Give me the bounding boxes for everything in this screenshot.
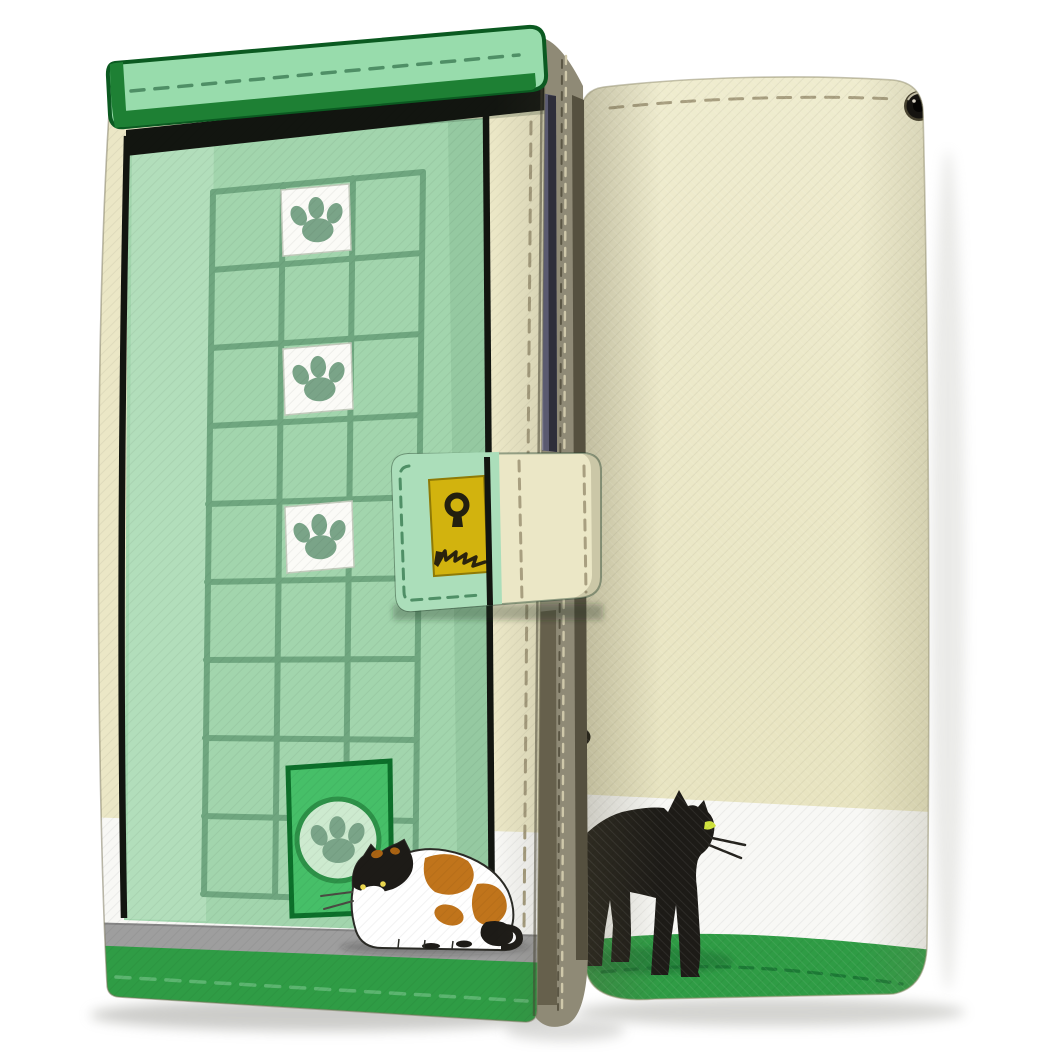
keyhole-plate [429,476,488,576]
clasp-strap [392,452,603,620]
back-shadow [575,998,965,1026]
back-texture-weave [570,60,940,1020]
phone-edge-dark [548,95,557,452]
clasp-frame-line [487,457,490,605]
back-side-shadow [931,150,965,990]
case-back [570,60,940,1020]
product-photo [0,0,1060,1060]
